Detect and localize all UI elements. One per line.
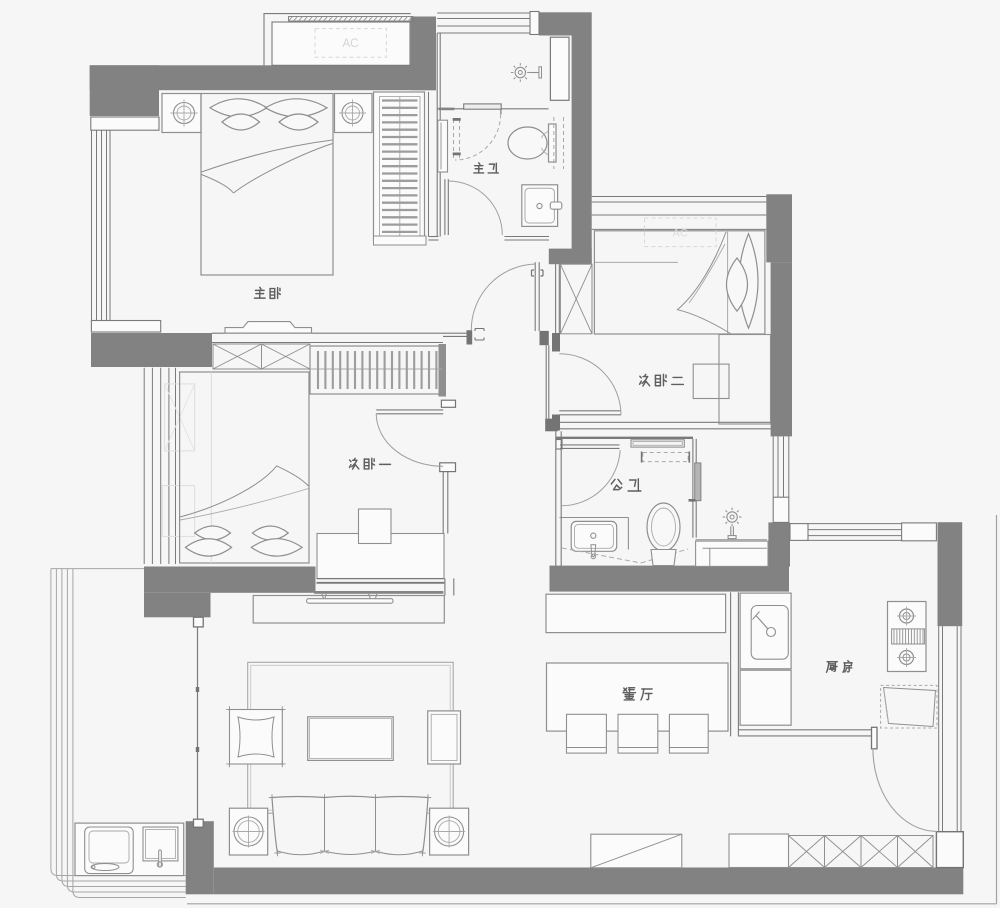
svg-text:AC: AC (673, 228, 688, 240)
svg-text:AC: AC (343, 38, 359, 50)
